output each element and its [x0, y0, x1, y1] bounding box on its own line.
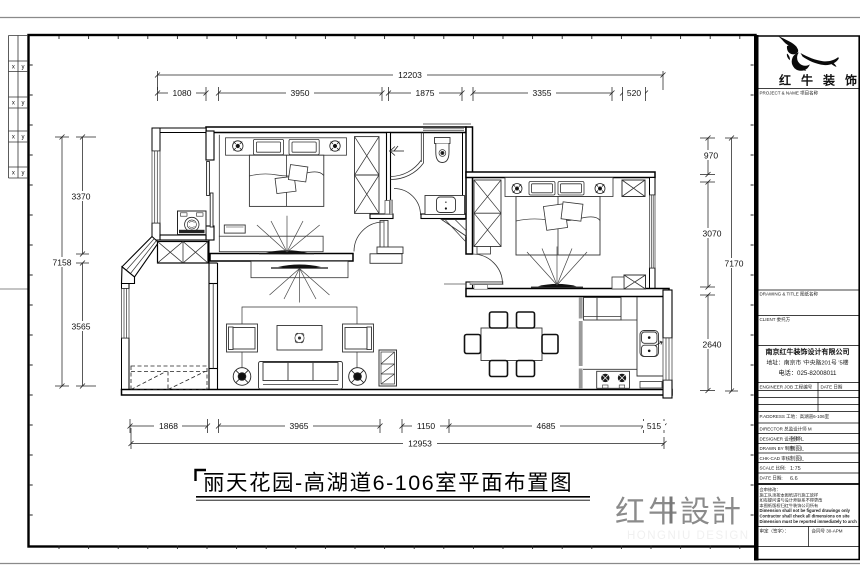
- svg-text:张烨L: 张烨L: [790, 435, 804, 443]
- svg-text:HONGNIU DESIGN: HONGNIU DESIGN: [627, 530, 750, 542]
- svg-text:PROJECT & NAME 项目名称: PROJECT & NAME 项目名称: [760, 90, 819, 97]
- svg-text:CLIENT 委托方: CLIENT 委托方: [760, 316, 791, 323]
- svg-text:3565: 3565: [72, 322, 91, 332]
- svg-text:設計: 設計: [680, 496, 742, 529]
- svg-text:y: y: [22, 135, 25, 141]
- svg-text:1080: 1080: [173, 88, 192, 98]
- svg-text:x: x: [12, 171, 15, 177]
- svg-text:制图L: 制图L: [790, 445, 804, 453]
- svg-text:南京红牛装饰设计有限公司: 南京红牛装饰设计有限公司: [766, 347, 850, 356]
- svg-text:3070: 3070: [703, 229, 722, 239]
- svg-text:P.ADDRESS 工地：高湖道6-106室: P.ADDRESS 工地：高湖道6-106室: [760, 413, 830, 420]
- svg-text:12203: 12203: [398, 70, 422, 80]
- svg-text:审定（签字）：: 审定（签字）：: [760, 528, 789, 535]
- svg-text:红牛装饰: 红牛装饰: [779, 73, 860, 88]
- svg-text:1150: 1150: [417, 421, 436, 431]
- svg-text:3355: 3355: [533, 88, 552, 98]
- svg-text:515: 515: [647, 421, 661, 431]
- svg-text:Dimension must be reported imm: Dimension must be reported immediately t…: [760, 519, 858, 524]
- svg-text:7158: 7158: [53, 258, 72, 268]
- svg-text:1868: 1868: [159, 421, 178, 431]
- svg-text:合同号 30-APM: 合同号 30-APM: [812, 528, 843, 535]
- svg-text:电话：025-82008011: 电话：025-82008011: [778, 369, 837, 377]
- svg-text:SCALE 比例:: SCALE 比例:: [760, 465, 786, 472]
- svg-text:520: 520: [627, 88, 641, 98]
- svg-text:制图L: 制图L: [790, 454, 804, 462]
- svg-text:4685: 4685: [537, 421, 556, 431]
- svg-text:x: x: [12, 135, 15, 141]
- svg-text:y: y: [22, 65, 25, 71]
- svg-text:3950: 3950: [291, 88, 310, 98]
- svg-text:x: x: [12, 101, 15, 107]
- svg-text:3965: 3965: [290, 421, 309, 431]
- svg-text:970: 970: [704, 151, 718, 161]
- svg-text:DIRECTOR 总监设计师 M: DIRECTOR 总监设计师 M: [760, 426, 812, 433]
- svg-text:3370: 3370: [72, 192, 91, 202]
- svg-text:x: x: [12, 65, 15, 71]
- svg-text:1875: 1875: [416, 88, 435, 98]
- svg-text:y: y: [22, 171, 25, 177]
- svg-text:Contractor shall check all dim: Contractor shall check all dimensions on…: [760, 514, 851, 519]
- svg-text:1:75: 1:75: [790, 466, 801, 472]
- svg-text:y: y: [22, 101, 25, 107]
- svg-text:12953: 12953: [408, 439, 432, 449]
- svg-text:ENGINEER JOB 工程编号: ENGINEER JOB 工程编号: [760, 384, 813, 391]
- svg-text:DRAWING & TITLE 图纸名称: DRAWING & TITLE 图纸名称: [760, 291, 819, 298]
- svg-text:2640: 2640: [703, 340, 722, 350]
- svg-text:7170: 7170: [725, 259, 744, 269]
- svg-text:CHK-CAD 审核:: CHK-CAD 审核:: [760, 455, 792, 462]
- svg-text:6.6: 6.6: [790, 476, 798, 482]
- svg-text:丽天花园-高湖道6-106室平面布置图: 丽天花园-高湖道6-106室平面布置图: [203, 471, 573, 495]
- svg-text:地址：南京市 '中央路201号 '5楼: 地址：南京市 '中央路201号 '5楼: [766, 359, 848, 367]
- svg-text:Dimension shall not be figured: Dimension shall not be figured drawings …: [760, 508, 851, 513]
